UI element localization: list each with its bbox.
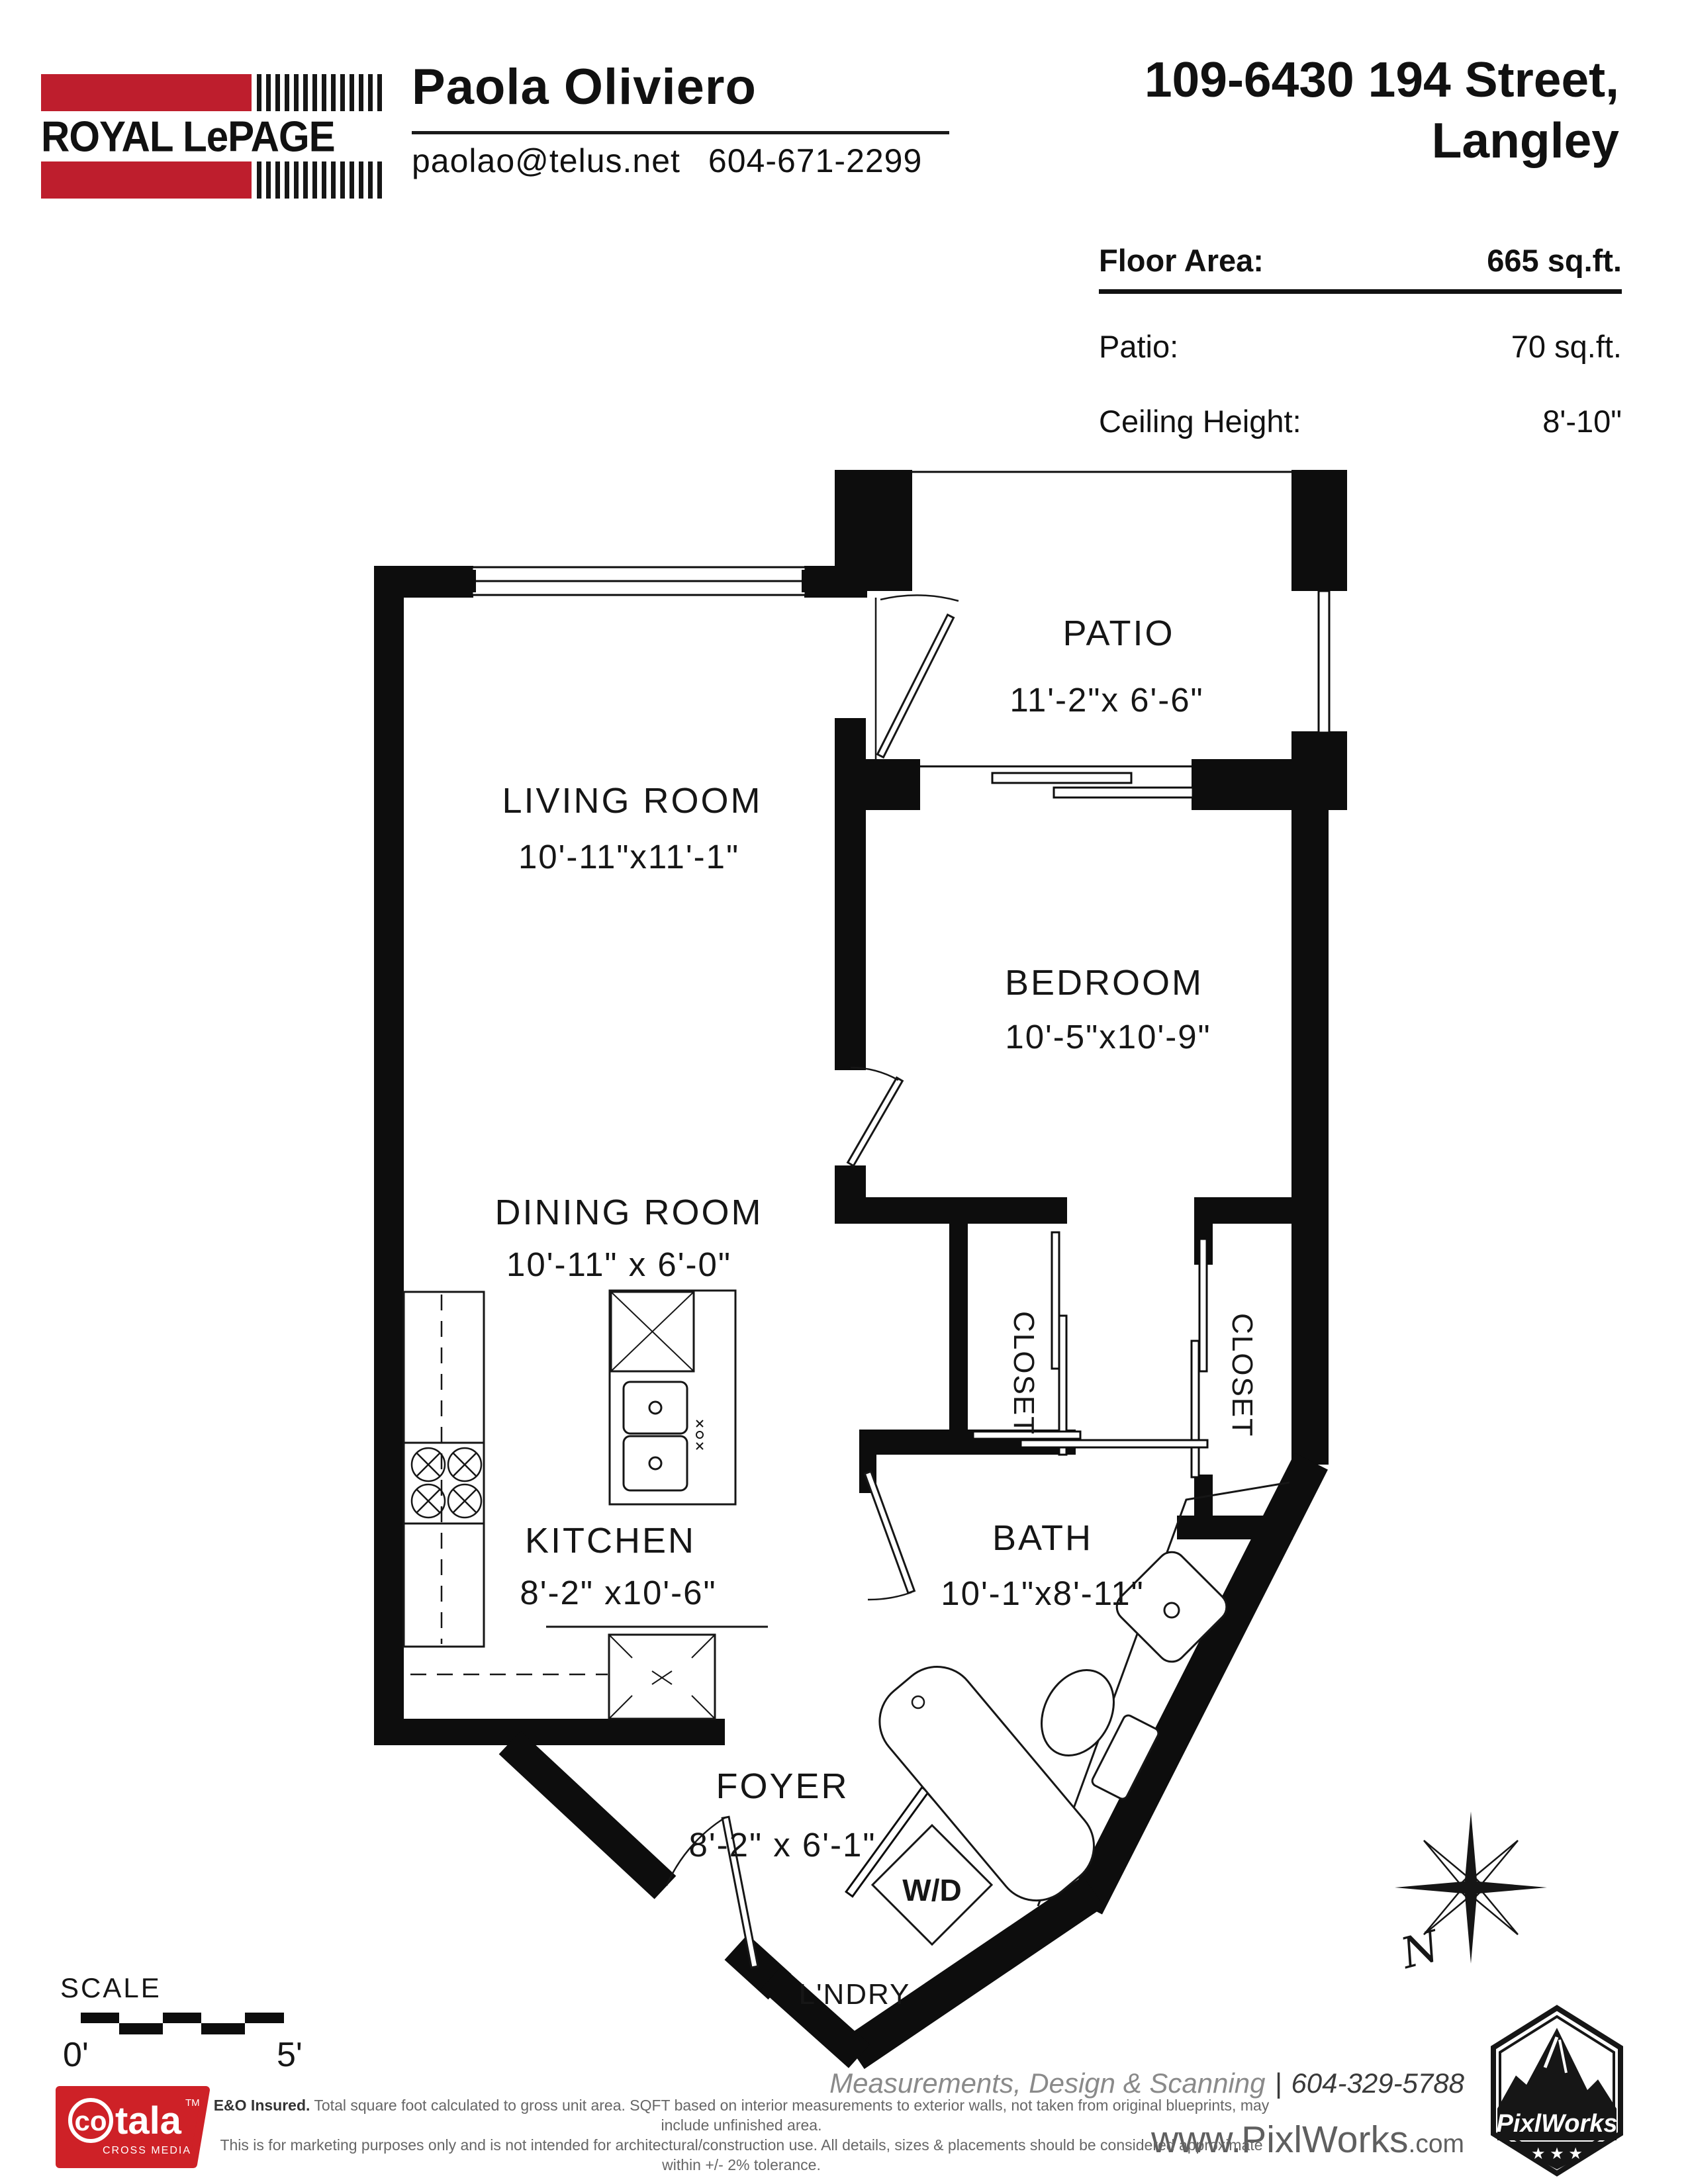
room-label-bedroom: BEDROOM [1005,963,1203,1003]
room-dims-living: 10'-11"x11'-1" [518,838,739,876]
disclaimer-line1-text: Total square foot calculated to gross un… [314,2097,1269,2134]
floorplan-sheet: ROYAL LePAGE Paola Oliviero paolao@telus… [0,0,1688,2184]
scale-bar: SCALE 0' 5' [60,1972,303,2074]
fridge [611,1292,694,1371]
room-dims-foyer: 8'-2" x 6'-1" [689,1826,876,1864]
room-dims-dining: 10'-11" x 6'-0" [506,1246,731,1283]
cotala-logo: co tala TM CROSS MEDIA [60,2090,206,2164]
washer-dryer-label: W/D [902,1873,961,1907]
room-dims-patio: 11'-2"x 6'-6" [1009,681,1203,719]
kitchen-fixtures [404,1291,768,1719]
room-label-foyer: FOYER [716,1766,849,1806]
north-compass-icon: N [1395,1811,1547,1979]
cotala-word2: tala [115,2099,182,2142]
pixlworks-stars-icon: ★ ★ ★ [1531,2145,1583,2163]
room-label-dining: DINING ROOM [495,1193,763,1232]
scale-end-label: 5' [277,2036,303,2074]
dishwasher [609,1635,715,1719]
closet-label-right: CLOSET [1226,1313,1258,1437]
room-dims-bath: 10'-1"x8'-11" [941,1574,1145,1612]
room-label-bath: BATH [992,1518,1093,1558]
disclaimer-bold: E&O Insured. [214,2097,310,2114]
cotala-subtitle: CROSS MEDIA [103,2145,191,2156]
disclaimer-text: E&O Insured. Total square foot calculate… [199,2095,1284,2175]
pixlworks-badge-name: PixlWorks [1496,2110,1617,2138]
services-line: Measurements, Design & Scanning|604-329-… [829,2068,1464,2099]
room-dims-bedroom: 10'-5"x10'-9" [1005,1018,1211,1056]
disclaimer-line1: E&O Insured. Total square foot calculate… [199,2095,1284,2135]
laundry-label: L'NDRY [799,1978,911,2011]
services-separator: | [1266,2068,1291,2099]
room-label-kitchen: KITCHEN [525,1521,696,1561]
services-phone: 604-329-5788 [1291,2068,1464,2099]
stove-burners [412,1448,481,1518]
closet-label-left: CLOSET [1008,1311,1040,1435]
disclaimer-line2: This is for marketing purposes only and … [199,2135,1284,2175]
room-dims-kitchen: 8'-2" x10'-6" [520,1574,716,1612]
compass-north-label: N [1395,1921,1446,1979]
cotala-tm: TM [185,2097,200,2109]
scale-start-label: 0' [63,2036,89,2074]
pixlworks-badge-logo: PixlWorks ★ ★ ★ [1493,2008,1620,2173]
room-label-patio: PATIO [1062,614,1174,653]
services-text: Measurements, Design & Scanning [829,2068,1265,2099]
cotala-word1: co [74,2105,107,2136]
floor-plan-drawing: PATIO 11'-2"x 6'-6" LIVING ROOM 10'-11"x… [0,0,1688,2184]
room-label-living: LIVING ROOM [502,781,762,821]
scale-title: SCALE [60,1972,162,2003]
website-tld: .com [1408,2130,1464,2158]
